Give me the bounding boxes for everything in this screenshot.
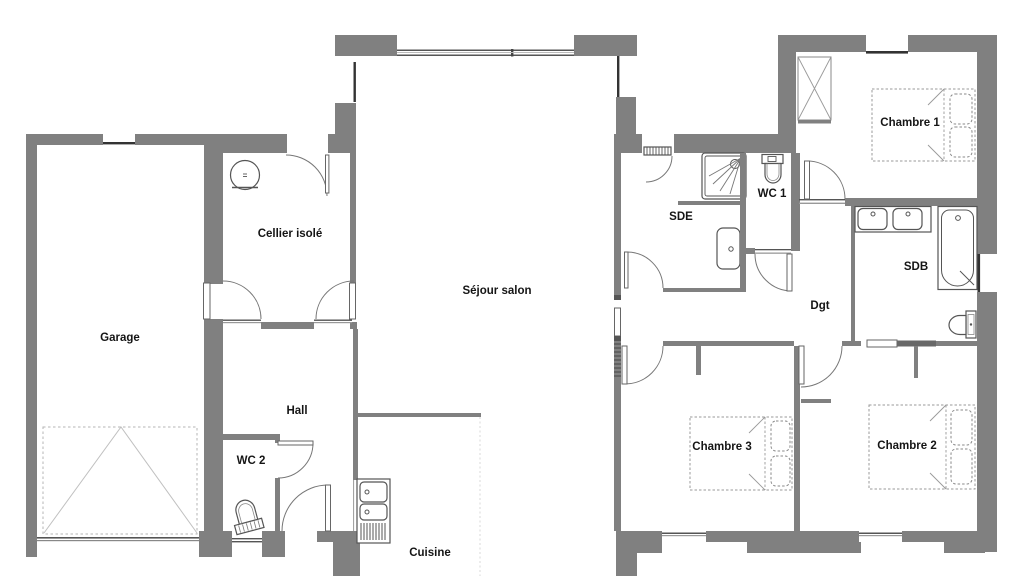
svg-text:Garage: Garage [100,332,140,344]
svg-text:SDB: SDB [904,261,928,273]
svg-text:WC 2: WC 2 [237,455,266,467]
svg-text:Chambre 2: Chambre 2 [877,440,936,452]
svg-text:Chambre 3: Chambre 3 [692,441,751,453]
svg-text:WC 1: WC 1 [758,188,787,200]
svg-text:Hall: Hall [286,405,307,417]
svg-text:Cuisine: Cuisine [409,547,451,559]
svg-text:Chambre 1: Chambre 1 [880,117,940,129]
svg-text:Séjour salon: Séjour salon [462,285,531,297]
svg-text:Cellier isolé: Cellier isolé [258,228,323,240]
svg-text:SDE: SDE [669,211,693,223]
svg-text:Dgt: Dgt [810,300,829,312]
